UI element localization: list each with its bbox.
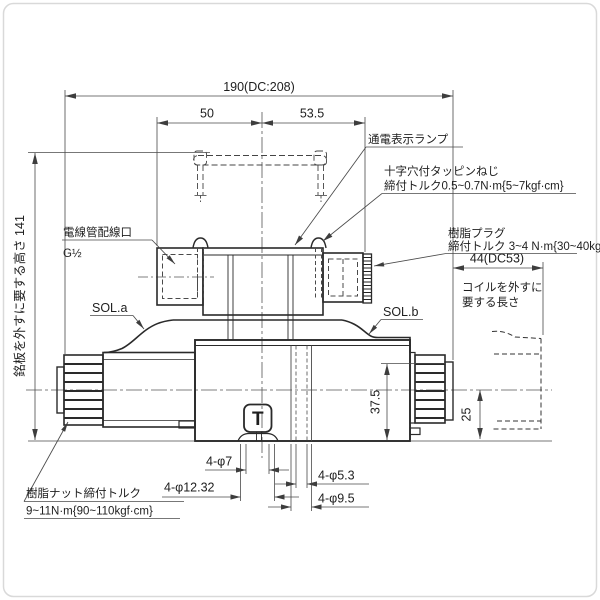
label-resin-nut-torque: 9~11N·m{90~110kgf·cm} — [26, 506, 153, 518]
resin-plug-knurl — [363, 254, 372, 303]
terminal-box — [157, 238, 372, 340]
phantom-coil — [492, 331, 541, 429]
drawing-canvas: T — [0, 0, 600, 600]
dim-center-to-plug: 53.5 — [300, 107, 324, 121]
valve-dimensional-drawing: T — [0, 0, 600, 600]
tapping-screw-right — [311, 238, 326, 248]
right-foot — [410, 428, 420, 435]
dim-counterbore: 4-φ9.5 — [318, 492, 355, 506]
terminal-box-body — [203, 248, 323, 315]
dim-total-width: 190(DC:208) — [223, 80, 295, 94]
sol-b-nut — [415, 355, 453, 423]
dim-left-to-center: 50 — [200, 107, 214, 121]
dim-port-spotface: 4-φ12.32 — [164, 481, 215, 495]
dim-bolt-hole: 4-φ5.3 — [318, 469, 355, 483]
valve-body: T — [57, 320, 453, 441]
label-coil-removal-2: 要する長さ — [462, 296, 520, 309]
sol-a-nut — [57, 355, 103, 425]
tapping-screw-left — [193, 238, 208, 248]
label-resin-plug-torque: 締付トルク 3~4 N·m{30~40kgf·cm} — [448, 239, 600, 253]
port-boss — [238, 434, 278, 442]
dim-coil-offset: 25 — [460, 408, 474, 422]
label-coil-removal-1: コイルを外すに — [462, 281, 543, 294]
label-tapping-screw: 十字穴付タッピンねじ — [384, 164, 499, 178]
conduit-box — [157, 248, 203, 305]
screw-shafts-hidden — [198, 248, 322, 300]
label-conduit-port: 電線管配線口 — [63, 225, 132, 239]
label-power-lamp: 通電表示ランプ — [368, 132, 449, 146]
dim-nameplate-height: 銘板を外すに要する高さ 141 — [12, 215, 27, 377]
sol-b-housing-curve — [342, 320, 410, 353]
dim-port-hole: 4-φ7 — [206, 455, 232, 469]
label-sol-a: SOL.a — [92, 301, 127, 315]
conduit-opening-hidden — [163, 255, 198, 299]
label-resin-plug: 樹脂プラグ — [448, 226, 506, 240]
bolt-hole-lines — [291, 346, 312, 442]
dim-body-height: 37.5 — [369, 390, 383, 414]
leader-arrows — [61, 233, 384, 432]
port-mark-letter: T — [252, 409, 264, 430]
sol-a-housing-curve — [104, 320, 173, 353]
label-tapping-screw-torque: 締付トルク0.5~0.7N·m{5~7kgf·cm} — [384, 179, 564, 193]
leader-lines — [24, 147, 577, 519]
phantom-nameplate — [194, 151, 327, 202]
label-sol-b: SOL.b — [383, 305, 418, 319]
label-resin-nut: 樹脂ナット締付トルク — [26, 486, 141, 500]
label-conduit-size: G½ — [63, 248, 82, 260]
